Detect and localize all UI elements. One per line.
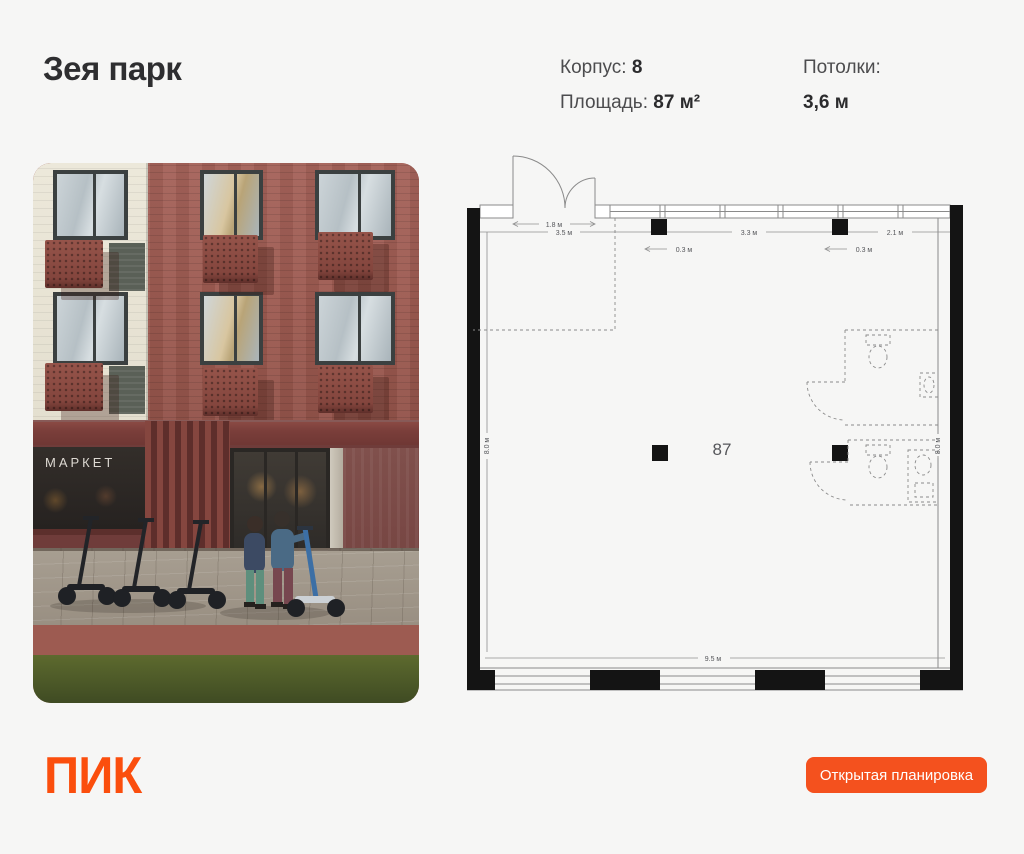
project-title: Зея парк: [43, 50, 181, 88]
plan-column: [832, 445, 848, 461]
unit-card: Зея парк Корпус: 8 Площадь: 87 м² Потолк…: [0, 0, 1024, 854]
facade-dark-tile: [109, 243, 145, 291]
ac-box: [318, 365, 373, 413]
spec-korpus: Корпус: 8: [560, 57, 700, 92]
plan-dashed-partitions: [473, 218, 938, 505]
dim-bottom: 9.5 м: [705, 656, 722, 663]
facade-window: [200, 292, 263, 365]
facade-window: [315, 292, 395, 365]
ac-box: [318, 232, 373, 280]
dim-top-left: 3.5 м: [556, 230, 573, 237]
spec-ceiling-value: 3,6 м: [803, 92, 849, 113]
spec-area-value: 87 м²: [653, 92, 700, 113]
dim-top-middle: 3.3 м: [741, 230, 758, 237]
dim-column-right: 0.3 м: [856, 247, 873, 254]
specs-column-right: Потолки: 3,6 м: [803, 57, 881, 127]
pik-logo[interactable]: ПИК: [44, 746, 141, 806]
open-plan-button[interactable]: Открытая планировка: [806, 757, 987, 793]
floor-plan: 1.8 м 3.5 м 3.3 м 2.1 м 0.3 м 0.3 м 8.0 …: [460, 145, 975, 710]
ac-box: [45, 240, 103, 288]
spec-ceiling-label-row: Потолки:: [803, 57, 881, 92]
facade-window: [53, 292, 128, 365]
spec-korpus-label: Корпус:: [560, 57, 627, 78]
bushes-base: [33, 655, 419, 703]
plan-column: [652, 445, 668, 461]
dim-top-right: 2.1 м: [887, 230, 904, 237]
facade-window: [53, 170, 128, 240]
building-photo: МАРКЕТ: [33, 163, 419, 703]
spec-area-label: Площадь:: [560, 92, 648, 113]
ac-box: [203, 368, 258, 416]
dim-column-left: 0.3 м: [676, 247, 693, 254]
facade-window: [315, 170, 395, 240]
unit-number: 87: [713, 440, 732, 459]
spec-area: Площадь: 87 м²: [560, 92, 700, 127]
ac-box: [45, 363, 103, 411]
parked-scooter: [79, 518, 209, 590]
spec-korpus-value: 8: [632, 57, 643, 78]
spec-ceiling-value-row: 3,6 м: [803, 92, 881, 127]
dim-left-side: 8.0 м: [484, 438, 491, 455]
dim-right-side: 8.0 м: [935, 438, 942, 455]
spec-ceiling-label: Потолки:: [803, 57, 881, 78]
ac-box: [203, 235, 258, 283]
dim-door-width: 1.8 м: [546, 222, 563, 229]
facade-window: [200, 170, 263, 240]
facade-dark-tile: [109, 366, 145, 414]
specs-column-left: Корпус: 8 Площадь: 87 м²: [560, 57, 700, 127]
